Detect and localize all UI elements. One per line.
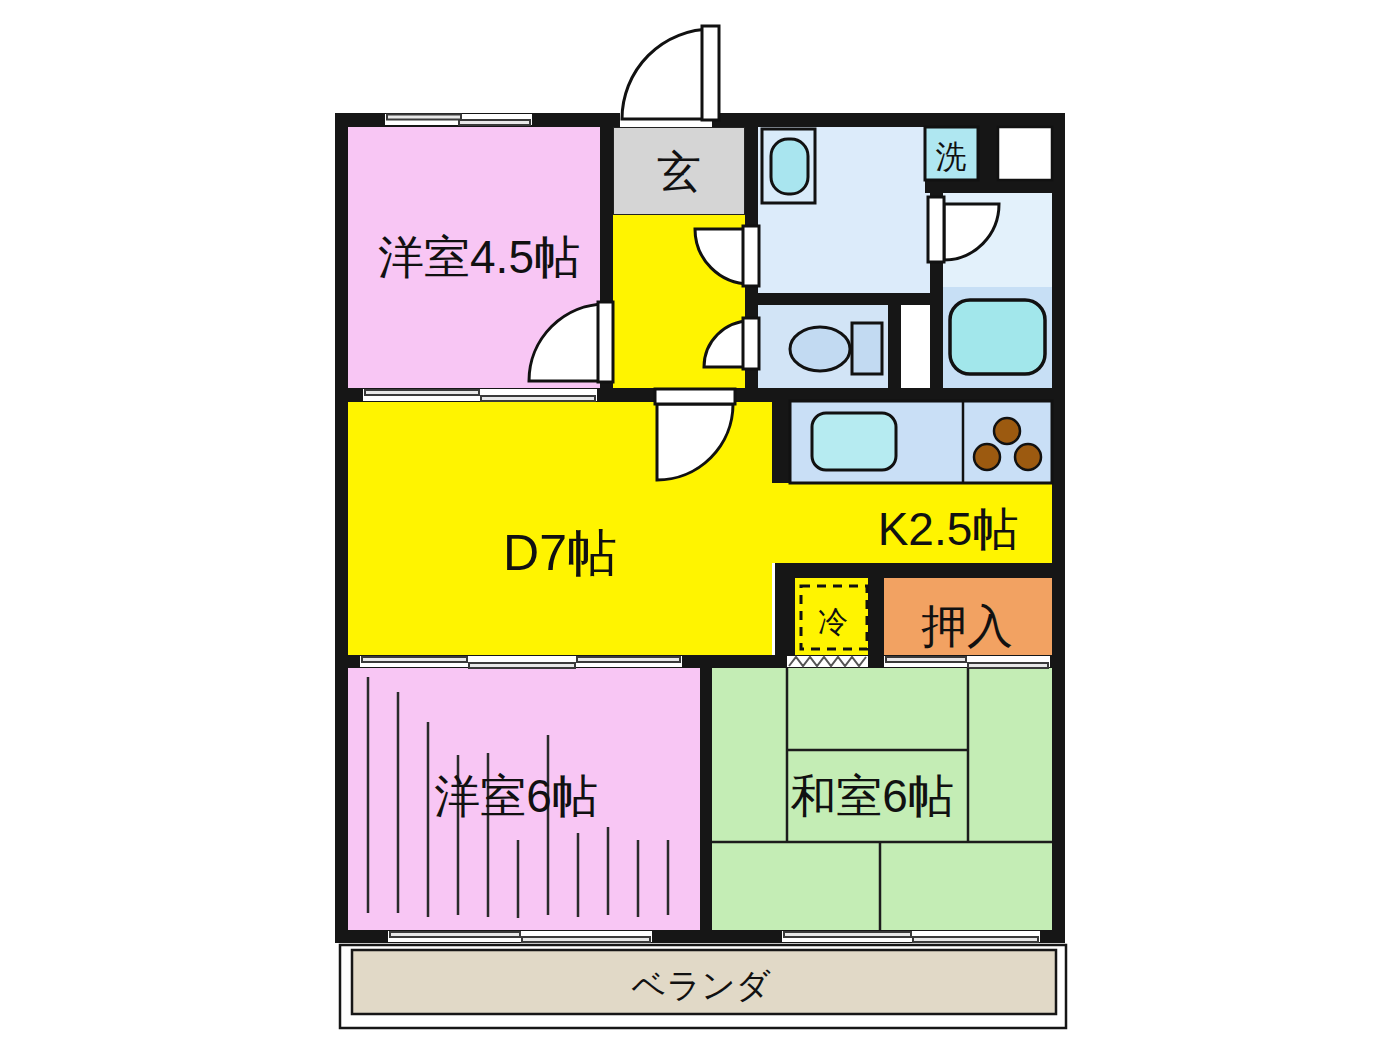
wall-segment — [925, 180, 1052, 193]
wall-segment — [700, 668, 712, 930]
door-leaf — [655, 389, 735, 404]
window-top — [385, 114, 532, 125]
sliding-panel — [577, 657, 680, 662]
window-panel — [522, 937, 650, 942]
sliding-panel — [365, 390, 479, 395]
bathtub-icon — [950, 300, 1045, 374]
sliding-panel — [362, 657, 467, 662]
genkan-label: 玄 — [657, 147, 701, 196]
sliding-panel — [481, 396, 595, 401]
wall-segment — [978, 113, 998, 180]
kitchen-sink-icon — [812, 413, 896, 470]
window-veranda-left — [388, 931, 652, 942]
floor-plan: ベランダ — [0, 0, 1400, 1050]
wall-segment — [758, 293, 930, 305]
window-panel — [387, 115, 461, 120]
floor-plan-page: ベランダ — [0, 0, 1400, 1050]
window-panel — [390, 932, 520, 937]
kitchen-label: K2.5帖 — [878, 503, 1019, 555]
toilet-tank — [852, 323, 882, 374]
wall-segment — [775, 563, 795, 655]
wall-segment — [600, 113, 613, 303]
sliding-door-dining-western6 — [360, 656, 682, 668]
burner — [994, 418, 1020, 444]
wall-segment — [930, 262, 943, 402]
wall-segment — [772, 402, 790, 483]
wall-segment — [795, 563, 1052, 578]
laundry-label: 洗 — [936, 139, 967, 174]
opening-kitchen-japanese-room — [787, 656, 868, 667]
window-panel — [784, 932, 911, 937]
fusuma-closet — [884, 656, 1050, 668]
refrigerator-label: 冷 — [818, 605, 848, 638]
wall-segment — [888, 293, 901, 388]
wall-segment — [868, 578, 884, 655]
japanese-room-label: 和室6帖 — [790, 770, 954, 822]
door-leaf — [702, 26, 719, 120]
window-panel — [459, 120, 530, 125]
kitchen-counter — [790, 401, 1052, 483]
sliding-panel — [968, 663, 1048, 668]
sink-bowl — [771, 139, 808, 194]
wall-segment — [745, 285, 758, 320]
toilet-bowl — [790, 327, 850, 371]
toilet-icon — [790, 323, 882, 374]
storage-alcove — [998, 127, 1052, 180]
veranda: ベランダ — [340, 945, 1066, 1028]
closet-label: 押入 — [921, 600, 1013, 652]
door-leaf — [928, 197, 944, 262]
door-leaf — [743, 318, 759, 369]
door-arc — [622, 29, 712, 119]
window-veranda-right — [782, 931, 1040, 942]
wall-segment — [335, 113, 348, 943]
door-leaf — [598, 302, 613, 382]
sliding-door-room45-dining — [363, 389, 597, 401]
sliding-panel — [469, 663, 575, 668]
vanity-sink-icon — [762, 129, 815, 203]
wall-segment — [1052, 113, 1065, 943]
veranda-label: ベランダ — [631, 966, 770, 1004]
door-leaf — [743, 226, 759, 286]
burner — [1015, 444, 1041, 470]
western-room-top-label: 洋室4.5帖 — [378, 231, 580, 283]
burner — [974, 444, 1000, 470]
window-panel — [913, 937, 1038, 942]
sliding-panel — [886, 657, 966, 662]
entrance-door — [620, 26, 719, 127]
wall-segment — [745, 368, 758, 402]
dining-label: D7帖 — [503, 525, 617, 581]
wall-segment — [745, 113, 758, 227]
laundry-box: 洗 — [925, 127, 978, 180]
western-room-bottom-label: 洋室6帖 — [434, 770, 598, 822]
